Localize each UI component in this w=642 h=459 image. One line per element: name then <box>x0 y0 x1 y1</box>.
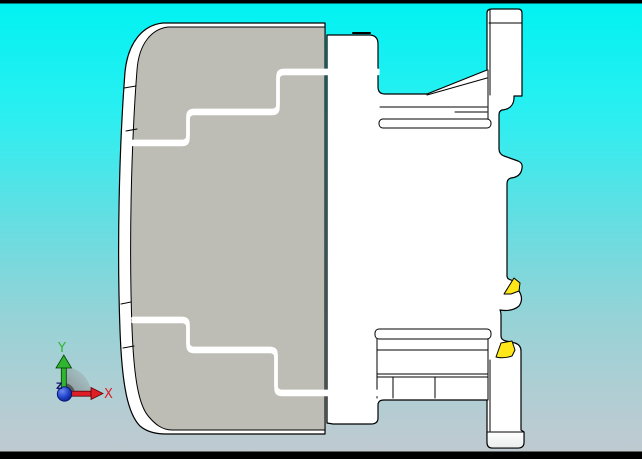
letterbox-bottom-bar <box>0 452 642 459</box>
axis-y-label: Y <box>57 341 66 356</box>
cad-viewport[interactable]: Y X Z <box>0 0 642 459</box>
viewport-canvas[interactable]: Y X Z <box>0 0 642 459</box>
axis-x-label: X <box>104 387 113 402</box>
letterbox-top-bar <box>0 0 642 4</box>
front-housing-face[interactable] <box>131 27 325 430</box>
din-clip-foot[interactable] <box>487 432 524 448</box>
axis-z-label: Z <box>56 382 63 392</box>
